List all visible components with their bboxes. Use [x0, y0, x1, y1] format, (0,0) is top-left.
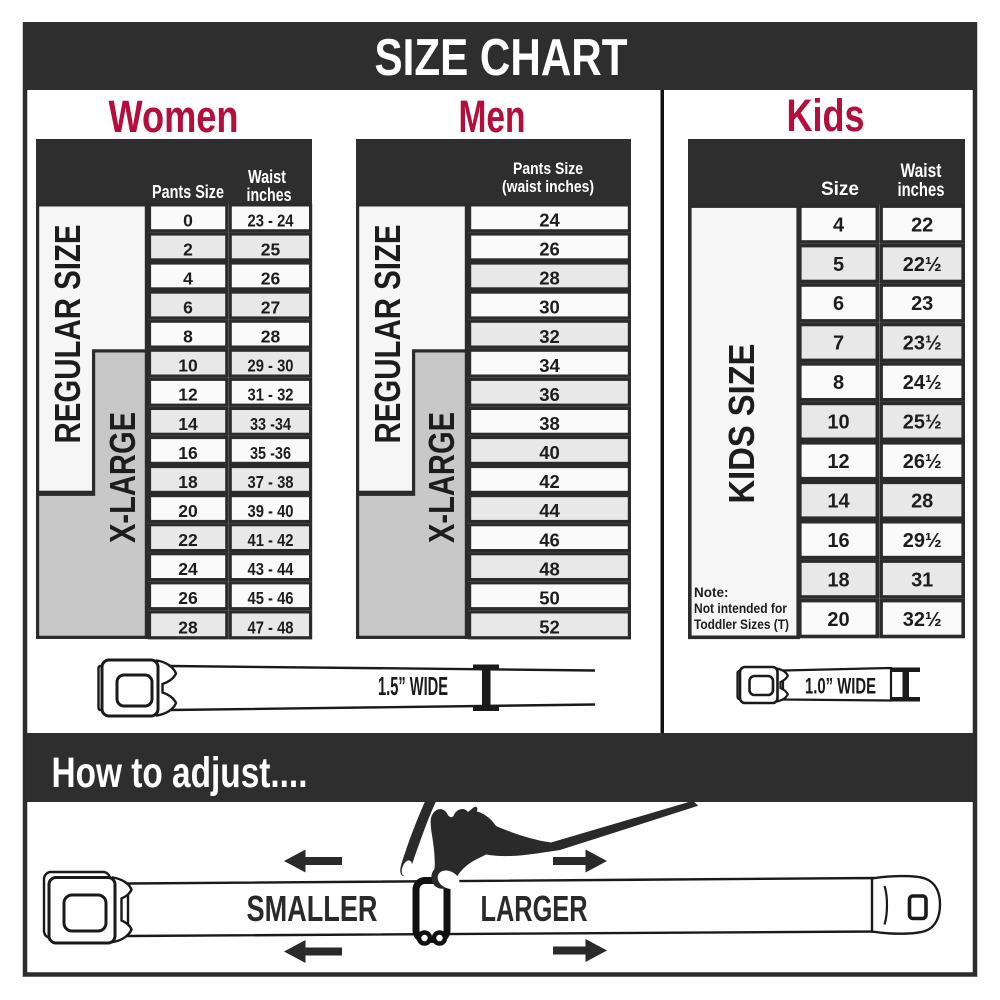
svg-text:Pants Size: Pants Size [152, 181, 224, 202]
svg-text:32½: 32½ [903, 609, 942, 631]
svg-text:22: 22 [911, 214, 933, 236]
svg-text:SIZE CHART: SIZE CHART [375, 28, 628, 86]
svg-text:50: 50 [539, 587, 560, 608]
svg-text:24: 24 [539, 210, 560, 231]
svg-text:31 - 32: 31 - 32 [248, 385, 294, 405]
svg-text:33 -34: 33 -34 [250, 414, 291, 434]
svg-text:LARGER: LARGER [481, 888, 588, 929]
svg-text:25: 25 [261, 239, 281, 259]
svg-text:25½: 25½ [903, 412, 942, 434]
svg-text:Pants Size: Pants Size [513, 159, 583, 178]
svg-text:28: 28 [911, 491, 933, 513]
svg-text:8: 8 [833, 372, 844, 394]
svg-text:31: 31 [911, 569, 933, 591]
svg-text:46: 46 [539, 529, 560, 550]
svg-text:Not intended for: Not intended for [694, 601, 788, 616]
svg-text:14: 14 [827, 491, 850, 513]
svg-text:6: 6 [833, 293, 844, 315]
svg-text:22½: 22½ [903, 254, 942, 276]
svg-text:10: 10 [178, 356, 198, 376]
svg-text:4: 4 [183, 268, 193, 288]
svg-text:22: 22 [178, 530, 198, 550]
svg-text:6: 6 [183, 298, 193, 318]
svg-text:Toddler Sizes (T): Toddler Sizes (T) [694, 617, 789, 632]
svg-text:20: 20 [178, 501, 198, 521]
svg-text:42: 42 [539, 471, 560, 492]
svg-text:41 - 42: 41 - 42 [248, 530, 294, 550]
svg-text:12: 12 [178, 385, 198, 405]
svg-text:23 - 24: 23 - 24 [248, 210, 294, 230]
svg-text:30: 30 [539, 297, 560, 318]
svg-text:26: 26 [539, 239, 560, 260]
svg-text:7: 7 [833, 333, 844, 355]
svg-text:X-LARGE: X-LARGE [102, 412, 143, 543]
svg-text:(waist inches): (waist inches) [502, 177, 594, 196]
svg-text:16: 16 [827, 530, 849, 552]
svg-text:12: 12 [827, 451, 849, 473]
svg-text:23½: 23½ [903, 333, 942, 355]
svg-text:Size: Size [821, 179, 859, 200]
svg-text:45 - 46: 45 - 46 [248, 588, 294, 608]
svg-text:39 - 40: 39 - 40 [248, 501, 294, 521]
svg-text:23: 23 [911, 293, 933, 315]
svg-text:REGULAR SIZE: REGULAR SIZE [367, 225, 408, 444]
svg-text:52: 52 [539, 617, 560, 638]
svg-text:2: 2 [183, 239, 193, 259]
svg-text:28: 28 [261, 327, 281, 347]
svg-text:Kids: Kids [787, 90, 865, 141]
svg-text:38: 38 [539, 413, 560, 434]
svg-text:28: 28 [178, 617, 198, 637]
svg-text:Waist: Waist [901, 161, 943, 182]
svg-text:48: 48 [539, 558, 560, 579]
svg-text:28: 28 [539, 268, 560, 289]
svg-text:26½: 26½ [903, 451, 942, 473]
svg-text:20: 20 [827, 609, 849, 631]
svg-text:Note:: Note: [694, 585, 729, 600]
svg-text:29½: 29½ [903, 530, 942, 552]
svg-text:47 - 48: 47 - 48 [248, 617, 294, 637]
svg-text:26: 26 [261, 268, 281, 288]
svg-text:Men: Men [459, 91, 526, 142]
svg-text:14: 14 [178, 414, 198, 434]
svg-text:36: 36 [539, 384, 560, 405]
svg-text:18: 18 [178, 472, 198, 492]
svg-text:18: 18 [827, 569, 849, 591]
svg-text:10: 10 [827, 412, 849, 434]
svg-text:SMALLER: SMALLER [247, 888, 378, 929]
svg-text:32: 32 [539, 326, 560, 347]
svg-text:1.5” WIDE: 1.5” WIDE [378, 671, 448, 701]
svg-text:34: 34 [539, 355, 560, 376]
svg-text:35 -36: 35 -36 [250, 443, 291, 463]
svg-text:43 - 44: 43 - 44 [248, 559, 294, 579]
svg-text:16: 16 [178, 443, 198, 463]
svg-text:inches: inches [247, 184, 292, 205]
svg-text:5: 5 [833, 254, 844, 276]
svg-text:X-LARGE: X-LARGE [421, 412, 462, 543]
svg-text:8: 8 [183, 327, 193, 347]
svg-text:29 - 30: 29 - 30 [248, 356, 294, 376]
svg-text:KIDS SIZE: KIDS SIZE [721, 344, 762, 504]
svg-text:37 - 38: 37 - 38 [248, 472, 294, 492]
svg-text:40: 40 [539, 442, 560, 463]
svg-text:24: 24 [178, 559, 198, 579]
svg-text:26: 26 [178, 588, 198, 608]
svg-text:27: 27 [261, 298, 280, 318]
svg-text:REGULAR SIZE: REGULAR SIZE [47, 225, 88, 444]
svg-text:4: 4 [833, 214, 845, 236]
svg-text:Women: Women [109, 91, 239, 142]
svg-text:0: 0 [183, 210, 193, 230]
svg-text:24½: 24½ [903, 372, 942, 394]
svg-text:inches: inches [898, 180, 945, 201]
svg-text:1.0” WIDE: 1.0” WIDE [805, 674, 876, 699]
svg-text:How to adjust....: How to adjust.... [52, 749, 308, 797]
svg-text:44: 44 [539, 500, 560, 521]
